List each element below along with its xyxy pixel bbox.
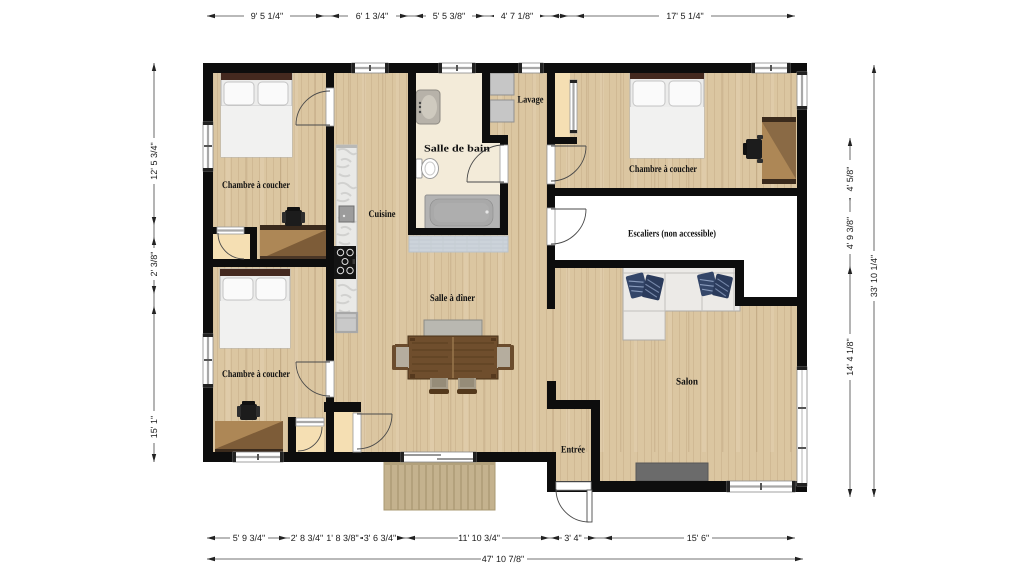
svg-text:12' 5 3/4": 12' 5 3/4" [149, 142, 159, 179]
svg-text:Chambre à coucher: Chambre à coucher [222, 180, 290, 191]
svg-text:15' 1": 15' 1" [149, 416, 159, 438]
svg-text:6' 1 3/4": 6' 1 3/4" [356, 11, 388, 21]
svg-text:Entrée: Entrée [561, 445, 585, 456]
svg-text:Salle à dîner: Salle à dîner [430, 293, 475, 304]
svg-text:5' 5 3/8": 5' 5 3/8" [433, 11, 465, 21]
svg-text:47' 10 7/8": 47' 10 7/8" [482, 554, 524, 564]
svg-text:4' 9 3/8": 4' 9 3/8" [845, 217, 855, 249]
svg-text:3' 6 3/4": 3' 6 3/4" [364, 533, 396, 543]
svg-text:5' 9 3/4": 5' 9 3/4" [233, 533, 265, 543]
svg-text:4' 5/8": 4' 5/8" [845, 167, 855, 192]
svg-text:33' 10 1/4": 33' 10 1/4" [869, 255, 879, 297]
svg-text:17' 5 1/4": 17' 5 1/4" [666, 11, 703, 21]
svg-text:2' 8 3/4": 2' 8 3/4" [291, 533, 323, 543]
svg-text:11' 10 3/4": 11' 10 3/4" [458, 533, 500, 543]
svg-text:Escaliers (non accessible): Escaliers (non accessible) [628, 229, 716, 240]
svg-text:15' 6": 15' 6" [687, 533, 709, 543]
svg-text:Salle de bain: Salle de bain [424, 144, 491, 155]
svg-text:14' 4 1/8": 14' 4 1/8" [845, 338, 855, 375]
svg-text:2' 3/8": 2' 3/8" [149, 252, 159, 277]
svg-text:Cuisine: Cuisine [369, 209, 396, 220]
svg-text:Salon: Salon [676, 377, 698, 388]
svg-text:4' 7 1/8": 4' 7 1/8" [501, 11, 533, 21]
svg-text:3' 4": 3' 4" [564, 533, 581, 543]
svg-text:1' 8 3/8": 1' 8 3/8" [326, 533, 358, 543]
svg-text:Chambre à coucher: Chambre à coucher [629, 164, 697, 175]
svg-text:9' 5 1/4": 9' 5 1/4" [251, 11, 283, 21]
svg-text:Chambre à coucher: Chambre à coucher [222, 369, 290, 380]
svg-text:Lavage: Lavage [518, 95, 544, 106]
